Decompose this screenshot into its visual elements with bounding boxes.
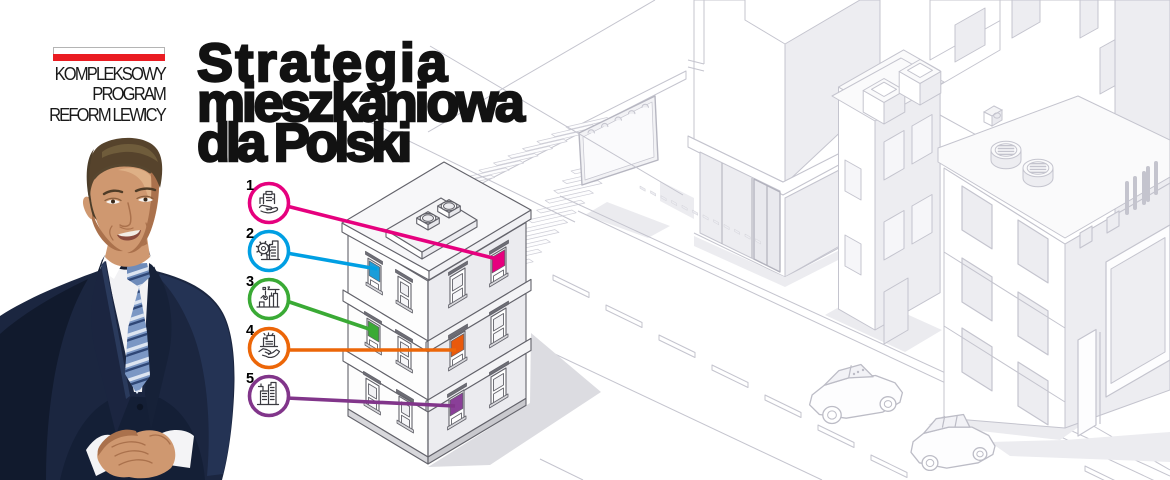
- svg-text:4: 4: [246, 323, 254, 339]
- svg-text:3: 3: [246, 274, 254, 290]
- svg-text:1: 1: [246, 178, 254, 194]
- svg-text:2: 2: [246, 226, 254, 242]
- svg-text:5: 5: [246, 371, 254, 387]
